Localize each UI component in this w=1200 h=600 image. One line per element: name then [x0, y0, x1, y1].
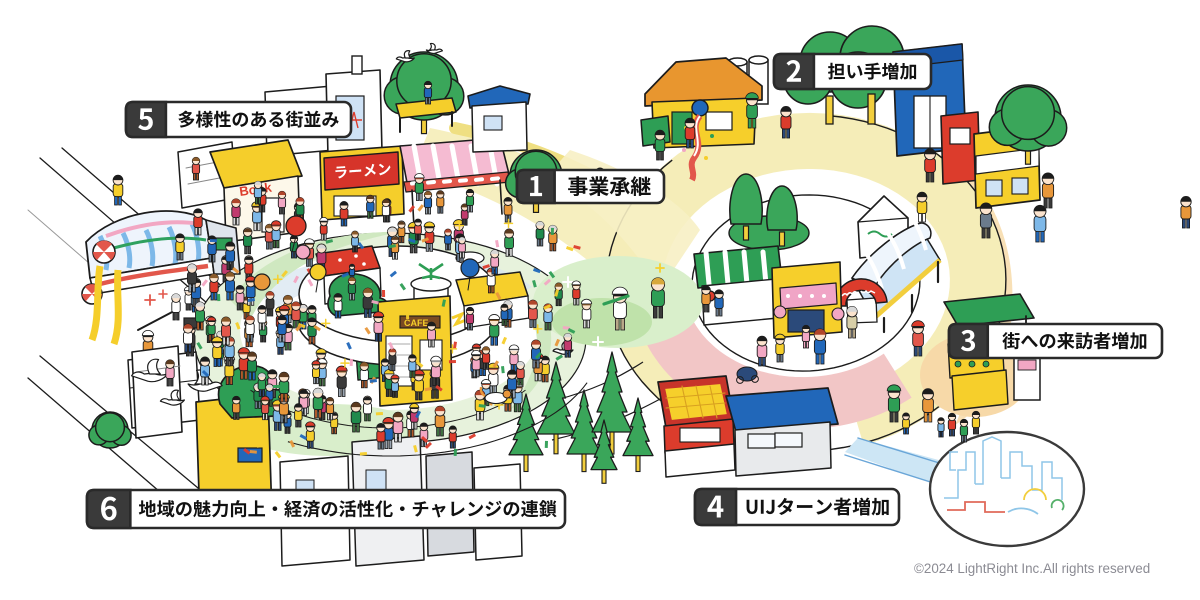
svg-text:CAFE: CAFE: [404, 318, 429, 328]
svg-text:©2024 LightRight Inc.All right: ©2024 LightRight Inc.All rights reserved: [914, 561, 1150, 576]
